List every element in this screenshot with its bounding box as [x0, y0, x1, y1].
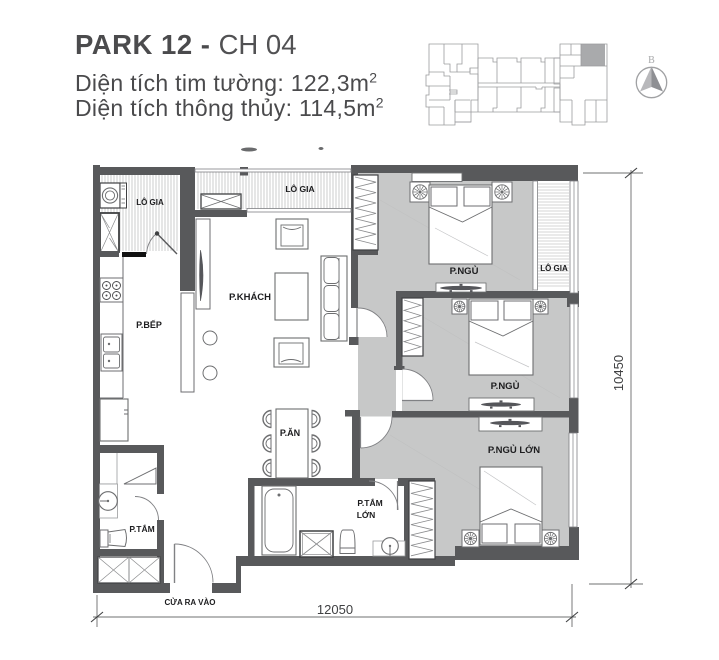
- svg-text:LỚN: LỚN: [357, 509, 376, 520]
- svg-text:P.NGỦ: P.NGỦ: [450, 265, 479, 277]
- svg-text:P.NGỦ: P.NGỦ: [491, 380, 520, 392]
- svg-text:LÔ GIA: LÔ GIA: [285, 183, 314, 194]
- svg-text:P.TẮM: P.TẮM: [129, 524, 154, 534]
- svg-text:12050: 12050: [317, 602, 353, 617]
- svg-text:LÔ GIA: LÔ GIA: [540, 264, 568, 273]
- svg-text:P.NGỦ LỚN: P.NGỦ LỚN: [488, 444, 540, 456]
- svg-text:B: B: [648, 55, 655, 66]
- svg-text:P.BẾP: P.BẾP: [136, 320, 162, 330]
- svg-text:10450: 10450: [611, 355, 626, 391]
- svg-text:P.ĂN: P.ĂN: [280, 428, 300, 438]
- svg-text:P.KHÁCH: P.KHÁCH: [229, 292, 271, 303]
- svg-text:P.TẮM: P.TẮM: [357, 498, 382, 508]
- svg-text:CỬA RA VÀO: CỬA RA VÀO: [165, 598, 216, 607]
- svg-text:LÔ GIA: LÔ GIA: [136, 198, 164, 207]
